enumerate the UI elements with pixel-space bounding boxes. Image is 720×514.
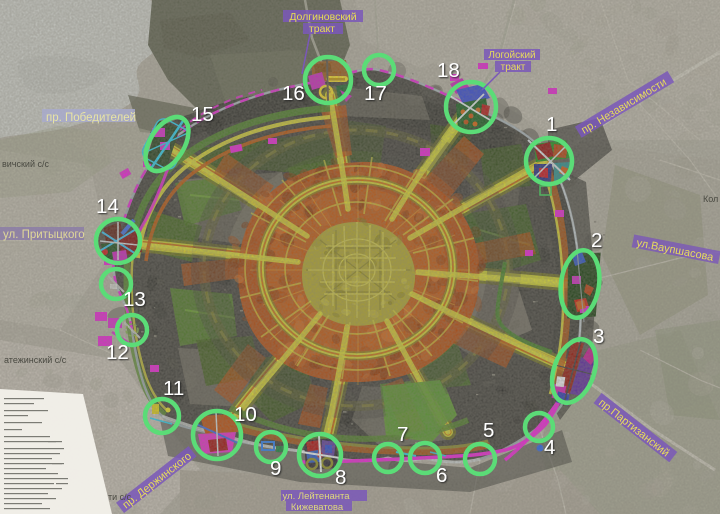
svg-text:4: 4 xyxy=(544,436,555,459)
svg-text:тракт: тракт xyxy=(501,62,526,73)
svg-text:1: 1 xyxy=(546,113,557,136)
svg-text:16: 16 xyxy=(282,82,305,105)
svg-text:Кол: Кол xyxy=(703,194,718,204)
svg-text:тракт: тракт xyxy=(309,23,335,35)
svg-text:Кижеватова: Кижеватова xyxy=(291,502,344,513)
svg-text:14: 14 xyxy=(96,195,119,218)
svg-text:6: 6 xyxy=(436,464,447,487)
svg-text:3: 3 xyxy=(593,325,604,348)
svg-text:5: 5 xyxy=(483,419,494,442)
svg-text:13: 13 xyxy=(123,288,146,311)
svg-text:Логойский: Логойский xyxy=(488,50,535,61)
svg-text:18: 18 xyxy=(437,59,460,82)
svg-text:2: 2 xyxy=(591,229,602,252)
svg-text:8: 8 xyxy=(335,466,346,489)
svg-text:9: 9 xyxy=(270,457,281,480)
svg-text:17: 17 xyxy=(364,82,387,105)
svg-text:пр. Победителей: пр. Победителей xyxy=(46,112,136,124)
svg-text:вичский с/с: вичский с/с xyxy=(2,159,49,169)
svg-text:7: 7 xyxy=(397,423,408,446)
svg-text:ул. Лейтенанта: ул. Лейтенанта xyxy=(282,491,350,502)
svg-text:11: 11 xyxy=(163,377,184,400)
svg-text:ул. Притыцкого: ул. Притыцкого xyxy=(3,229,85,241)
svg-text:атежинский с/с: атежинский с/с xyxy=(4,355,67,365)
svg-text:15: 15 xyxy=(191,103,214,126)
svg-text:10: 10 xyxy=(234,403,257,426)
svg-text:12: 12 xyxy=(106,341,129,364)
svg-text:Долгиновский: Долгиновский xyxy=(289,11,356,23)
svg-text:ти с/с: ти с/с xyxy=(108,492,132,502)
